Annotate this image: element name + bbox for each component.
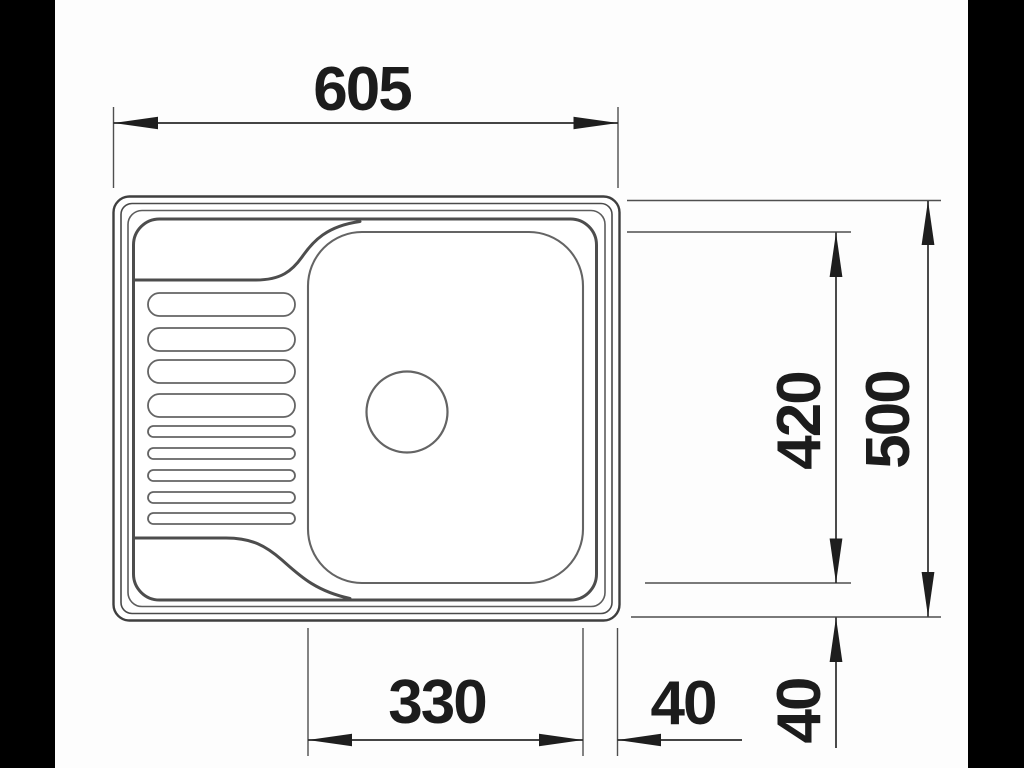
drainboard-rib: [148, 448, 295, 459]
dim-label-bowl-length: 420: [769, 372, 831, 469]
drainboard-rib: [148, 328, 295, 351]
dim-label-bowl-width: 330: [337, 672, 537, 734]
drainboard-rib: [148, 492, 295, 503]
drainboard-rib: [148, 360, 295, 383]
dim-label-offset-bottom: 40: [769, 679, 831, 744]
drainboard-rib: [148, 426, 295, 437]
drainboard-rib: [148, 293, 295, 316]
drainboard-rib: [148, 470, 295, 481]
sink-technical-drawing: 605 330 40 420 500 40: [0, 0, 1024, 768]
dim-label-offset-right: 40: [608, 673, 758, 735]
drainboard-rib: [148, 394, 295, 417]
dim-label-overall-width: 605: [262, 59, 462, 121]
drainboard-rib: [148, 513, 295, 524]
dim-label-overall-depth: 500: [858, 371, 920, 468]
